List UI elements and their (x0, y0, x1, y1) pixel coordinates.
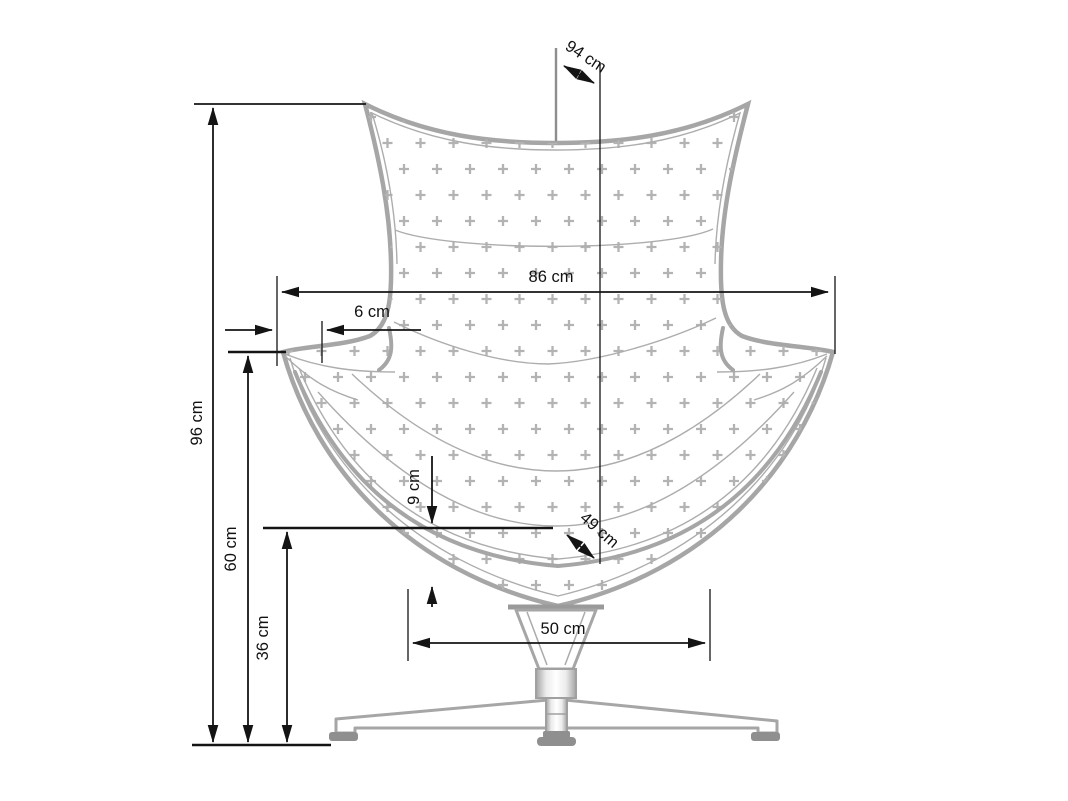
stem-cylinder (536, 669, 576, 698)
foot-left (329, 732, 358, 741)
foot-center-pad (537, 737, 576, 746)
foot-center-collar (543, 731, 570, 738)
dim-label-96: 96 cm (188, 401, 206, 446)
dim-label-94: 94 cm (562, 37, 609, 77)
dim-label-60: 60 cm (222, 527, 240, 572)
shell (283, 104, 833, 606)
stem-cone (516, 610, 596, 669)
stem-column (546, 698, 567, 733)
chair-dimension-diagram: 96 cm 60 cm 36 cm 86 cm 6 cm (0, 0, 1068, 801)
dim-label-86: 86 cm (529, 268, 574, 286)
quilting-plus-pattern (283, 104, 833, 606)
technical-drawing-canvas: 96 cm 60 cm 36 cm 86 cm 6 cm (0, 0, 1068, 801)
chair (283, 104, 833, 746)
dim-label-9: 9 cm (405, 469, 423, 505)
base-leg-right (565, 700, 777, 733)
dim-label-50: 50 cm (541, 620, 586, 638)
dimension-armrest-60: 60 cm (222, 352, 286, 742)
base-leg-left (336, 700, 548, 733)
foot-right (751, 732, 780, 741)
dim-label-36: 36 cm (254, 616, 272, 661)
dim-label-6: 6 cm (354, 303, 390, 321)
